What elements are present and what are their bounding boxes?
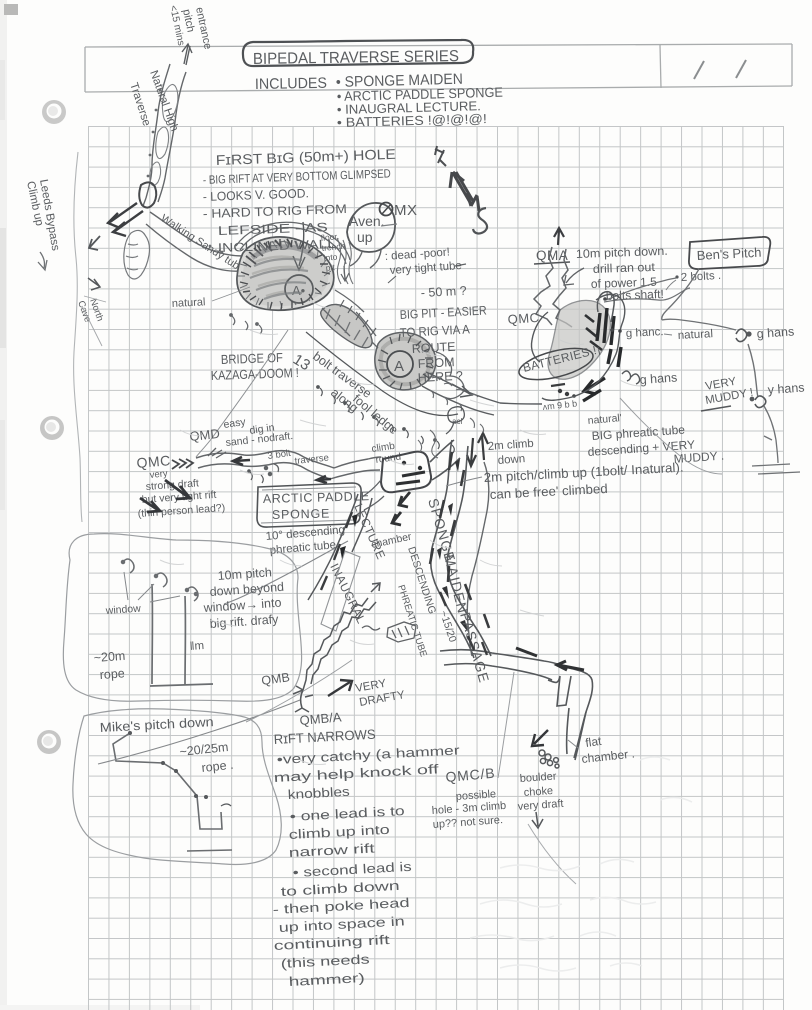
svg-text:A: A xyxy=(394,358,404,375)
svg-text:~20m: ~20m xyxy=(93,649,126,665)
svg-text:HERE ?: HERE ? xyxy=(417,369,463,385)
svg-text:down: down xyxy=(497,453,525,467)
svg-text:SPONGE: SPONGE xyxy=(272,506,331,522)
svg-text:INCLUDES: INCLUDES xyxy=(255,75,327,93)
svg-text:drill ran out: drill ran out xyxy=(593,260,656,276)
svg-text:into: into xyxy=(323,252,338,263)
svg-text:g hans: g hans xyxy=(756,324,794,341)
svg-text:acl: acl xyxy=(452,417,462,426)
svg-text:2 bolts .: 2 bolts . xyxy=(681,270,722,284)
svg-text:MX: MX xyxy=(394,202,418,219)
svg-text:natural: natural xyxy=(678,328,714,342)
svg-text:window: window xyxy=(104,603,141,618)
svg-text:g hanc.: g hanc. xyxy=(626,326,664,340)
svg-text:ROUTE: ROUTE xyxy=(411,340,455,356)
svg-text:- 50 m ?: - 50 m ? xyxy=(420,284,467,300)
svg-text:flat: flat xyxy=(584,734,602,750)
svg-text:Aven.: Aven. xyxy=(349,213,385,229)
svg-text:g hans: g hans xyxy=(639,370,677,387)
svg-text:y hans: y hans xyxy=(767,380,805,397)
svg-text:‖m: ‖m xyxy=(189,640,204,653)
svg-text:up: up xyxy=(357,229,373,245)
svg-text:natural: natural xyxy=(172,296,206,310)
svg-text:KAZAGA-DOOM !: KAZAGA-DOOM ! xyxy=(211,365,299,383)
svg-text:rope: rope xyxy=(99,666,125,682)
svg-text:choke: choke xyxy=(523,785,553,799)
svg-text:BIPEDAL TRAVERSE SERIES: BIPEDAL TRAVERSE SERIES xyxy=(253,48,459,68)
svg-text:BRIDGE OF: BRIDGE OF xyxy=(221,350,284,367)
svg-text:QMA: QMA xyxy=(536,248,568,263)
svg-text:QMC: QMC xyxy=(507,310,540,327)
